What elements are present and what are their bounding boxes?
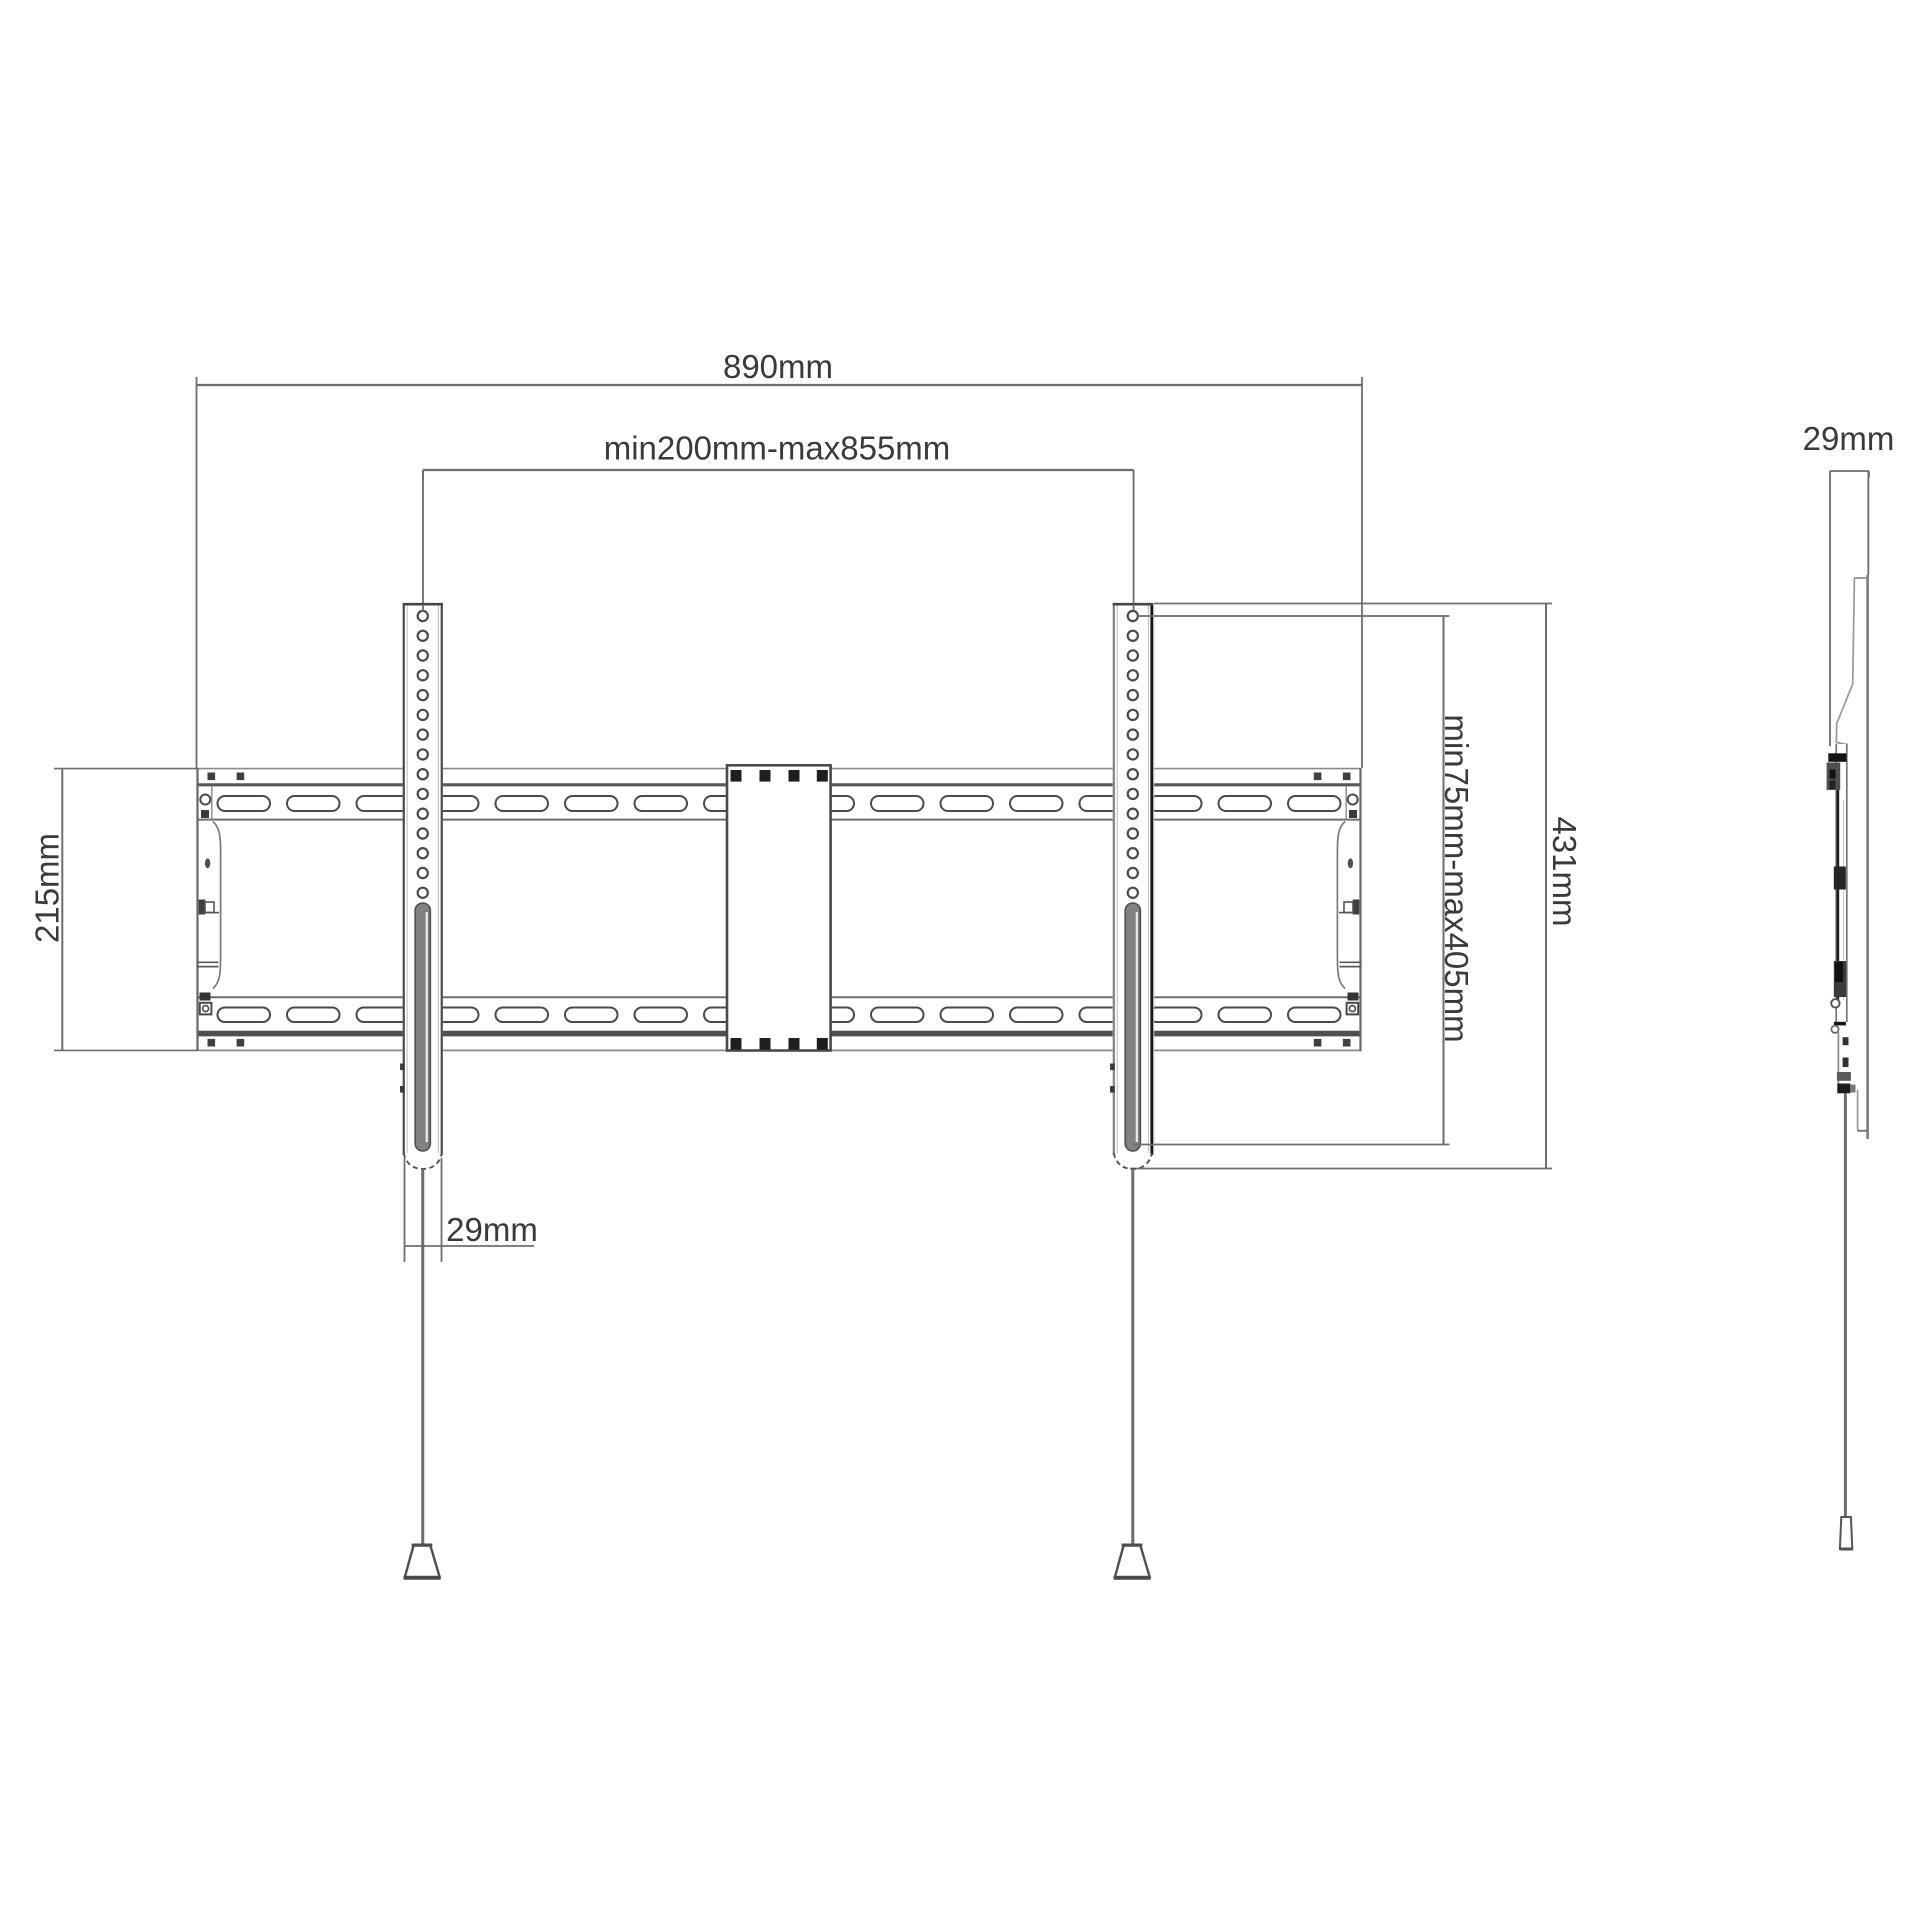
svg-text:29mm: 29mm [1803,420,1895,457]
svg-text:215mm: 215mm [29,833,66,943]
svg-text:890mm: 890mm [723,348,833,385]
svg-text:431mm: 431mm [1546,816,1583,926]
svg-text:29mm: 29mm [446,1211,538,1248]
svg-text:min75mm-max405mm: min75mm-max405mm [1438,714,1475,1042]
svg-text:min200mm-max855mm: min200mm-max855mm [604,430,951,467]
